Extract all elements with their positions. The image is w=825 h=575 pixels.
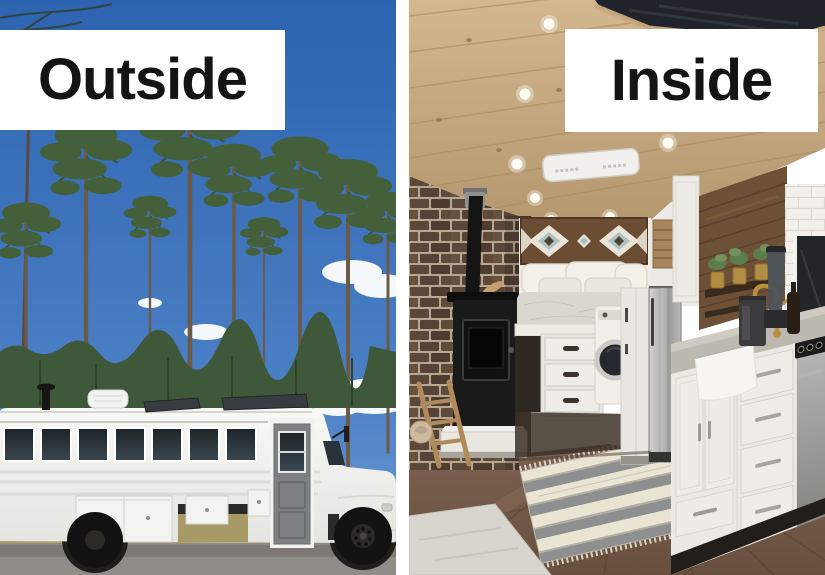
bus-windows [4,428,256,461]
panel-outside: Outside [0,0,396,575]
geometric-wood-art [521,218,647,264]
roof-vent-ac [88,390,128,408]
front-wheel [334,507,392,565]
under-bed-shadow-nook [515,336,541,412]
upper-cabinet [673,176,699,302]
panel-inside: Inside [409,0,825,575]
label-outside: Outside [0,30,285,130]
headlight [382,504,392,511]
label-inside: Inside [565,29,818,132]
coffee-maker [739,296,766,346]
pantry-column [621,288,651,464]
panel-divider [396,0,409,575]
label-outside-text: Outside [38,51,247,109]
rear-wheel [67,512,123,568]
label-inside-text: Inside [611,52,773,110]
before-after-comparison: Outside [0,0,825,575]
basket [410,421,432,443]
under-bed-drawers [541,334,603,416]
entry-door [270,418,314,548]
